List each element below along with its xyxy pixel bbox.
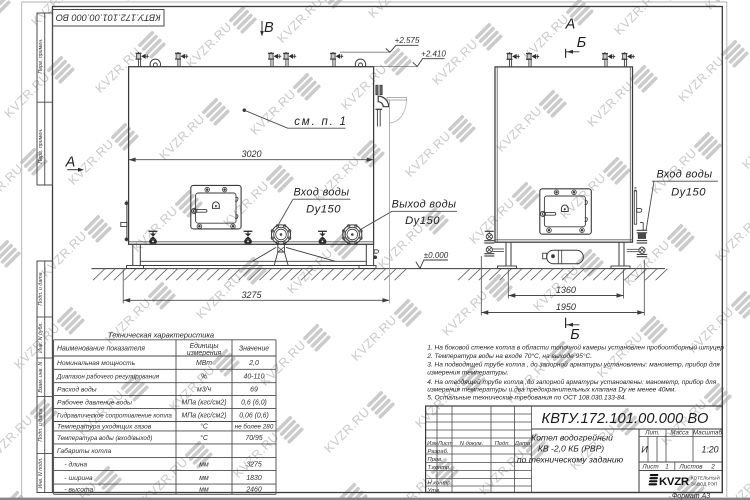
svg-text:Рабочее давление воды: Рабочее давление воды xyxy=(57,399,132,407)
svg-text:Котел водогрейный: Котел водогрейный xyxy=(531,433,613,443)
svg-text:Н.контр.: Н.контр. xyxy=(428,481,453,487)
svg-text:%: % xyxy=(201,373,207,380)
svg-text:1950: 1950 xyxy=(556,302,576,312)
svg-text:- ширина: - ширина xyxy=(57,475,93,482)
svg-text:Значение: Значение xyxy=(239,346,269,353)
svg-text:И: И xyxy=(641,445,648,455)
svg-text:Дата: Дата xyxy=(514,441,531,447)
svg-text:Вход воды: Вход воды xyxy=(656,169,712,181)
svg-text:по техническому заданию: по техническому заданию xyxy=(517,455,624,465)
svg-text:измерения: измерения xyxy=(187,350,222,357)
svg-text:мм: мм xyxy=(199,475,209,482)
svg-text:Температура воды (вход/выход): Температура воды (вход/выход) xyxy=(57,435,152,442)
svg-text:м3/ч: м3/ч xyxy=(197,387,211,394)
svg-text:3275: 3275 xyxy=(246,461,261,468)
svg-text:1830: 1830 xyxy=(246,475,261,482)
svg-text:°С: °С xyxy=(200,423,209,431)
svg-text:Гидравлическое сопротивление к: Гидравлическое сопротивление котла xyxy=(57,412,172,419)
svg-text:Б: Б xyxy=(570,327,579,343)
svg-text:В: В xyxy=(264,20,274,36)
svg-text:Лит.: Лит. xyxy=(644,430,660,437)
svg-text:Габариты котла: Габариты котла xyxy=(57,447,111,455)
svg-text:Перв. примен.: Перв. примен. xyxy=(38,38,44,73)
svg-text:Номинальная мощность: Номинальная мощность xyxy=(57,360,136,367)
svg-text:Dy150: Dy150 xyxy=(671,187,706,199)
svg-text:ЗАВОД РЭП: ЗАВОД РЭП xyxy=(691,482,717,487)
svg-text:МПа (кгс/см2): МПа (кгс/см2) xyxy=(181,412,226,419)
svg-text:КВТУ.172.101.00.000 ВО: КВТУ.172.101.00.000 ВО xyxy=(56,13,161,23)
svg-text:Выход воды: Выход воды xyxy=(392,199,457,211)
svg-text:Б: Б xyxy=(577,35,586,51)
svg-text:4. На отводящей трубе котла ,: 4. На отводящей трубе котла ,до запорной… xyxy=(427,378,717,386)
svg-text:мм: мм xyxy=(199,487,209,494)
svg-text:Изм: Изм xyxy=(427,441,438,447)
svg-text:- высота: - высота xyxy=(57,487,93,494)
svg-text:1. На боковой стенке котла в: 1. На боковой стенке котла в области топ… xyxy=(427,343,724,351)
svg-text:Перв. примен.: Перв. примен. xyxy=(38,128,44,163)
svg-text:2460: 2460 xyxy=(245,487,261,494)
svg-text:40-110: 40-110 xyxy=(244,373,265,380)
svg-text:Масса: Масса xyxy=(670,430,689,437)
svg-text:Температура уходящих газов: Температура уходящих газов xyxy=(57,423,152,431)
svg-text:Подп. и дата: Подп. и дата xyxy=(38,272,44,305)
svg-text:мм: мм xyxy=(199,461,209,468)
svg-text:Лист: Лист xyxy=(641,464,659,471)
svg-text:Наименование показателя: Наименование показателя xyxy=(57,346,145,353)
svg-text:КВ -2,0 КБ (РВР): КВ -2,0 КБ (РВР) xyxy=(538,444,604,454)
svg-text:измерения температуры и два пр: измерения температуры и два предохраните… xyxy=(427,386,676,394)
svg-text:70/95: 70/95 xyxy=(245,435,262,442)
svg-text:0,06 (0,6): 0,06 (0,6) xyxy=(239,412,269,419)
svg-text:Расход воды: Расход воды xyxy=(57,386,97,394)
svg-text:1: 1 xyxy=(665,464,669,471)
svg-text:КВТУ.172.101.00.000 ВО: КВТУ.172.101.00.000 ВО xyxy=(542,411,709,427)
svg-text:Взам. инв. N: Взам. инв. N xyxy=(38,362,44,393)
svg-text:2. Температура воды на входе: 2. Температура воды на входе 70°С, на вы… xyxy=(426,352,592,360)
svg-text:не более 280: не более 280 xyxy=(235,423,274,431)
svg-text:±0.000: ±0.000 xyxy=(424,251,449,260)
svg-text:измерения температуры.: измерения температуры. xyxy=(427,369,509,376)
svg-text:1360: 1360 xyxy=(556,285,576,295)
svg-text:+2.575: +2.575 xyxy=(395,36,420,45)
svg-text:0,6 (6,0): 0,6 (6,0) xyxy=(241,400,267,407)
svg-text:Техническая характеристика: Техническая характеристика xyxy=(108,331,214,340)
svg-text:Dy150: Dy150 xyxy=(306,204,341,216)
svg-text:2,0: 2,0 xyxy=(248,360,259,367)
svg-text:1:20: 1:20 xyxy=(701,444,718,454)
svg-text:Единицы: Единицы xyxy=(190,342,219,350)
svg-text:А: А xyxy=(565,17,576,33)
svg-text:КОТЕЛЬНЫЙ: КОТЕЛЬНЫЙ xyxy=(691,474,720,481)
svg-text:N докум.: N докум. xyxy=(460,441,483,447)
svg-text:Т.контр.: Т.контр. xyxy=(428,465,451,471)
svg-text:3275: 3275 xyxy=(241,290,262,300)
svg-text:- длина: - длина xyxy=(57,460,87,468)
svg-text:°С: °С xyxy=(200,434,209,442)
svg-text:Dy150: Dy150 xyxy=(405,215,440,227)
svg-text:Подп.: Подп. xyxy=(495,441,510,447)
svg-text:Инв. N подл.: Инв. N подл. xyxy=(38,458,44,489)
svg-text:Масштаб: Масштаб xyxy=(693,430,722,437)
svg-text:Вход воды: Вход воды xyxy=(293,187,349,199)
svg-text:+2.410: +2.410 xyxy=(421,49,446,58)
svg-text:2: 2 xyxy=(710,464,715,471)
svg-text:см. п. 1: см. п. 1 xyxy=(294,116,348,128)
svg-text:KVZR: KVZR xyxy=(659,476,689,488)
svg-text:Утв.: Утв. xyxy=(427,488,441,494)
svg-text:5. Остальные технические треб: 5. Остальные технические требования по О… xyxy=(427,394,626,402)
svg-text:Лист: Лист xyxy=(437,441,453,447)
svg-text:69: 69 xyxy=(250,387,258,394)
svg-text:Листов: Листов xyxy=(678,464,703,471)
svg-text:Пров.: Пров. xyxy=(428,457,443,463)
svg-text:Разраб.: Разраб. xyxy=(428,449,449,455)
svg-text:МВт: МВт xyxy=(196,360,212,367)
svg-text:Формат А3: Формат А3 xyxy=(672,493,710,500)
svg-text:Подп. и дата: Подп. и дата xyxy=(38,408,44,441)
svg-text:Инв. N дубл.: Инв. N дубл. xyxy=(38,322,44,353)
svg-text:3020: 3020 xyxy=(241,149,261,159)
svg-text:МПа (кгс/см2): МПа (кгс/см2) xyxy=(181,400,226,407)
svg-text:Диапазон рабочего регулировани: Диапазон рабочего регулирования xyxy=(56,373,160,380)
svg-text:3. На подводящей трубе котла: 3. На подводящей трубе котла , до запорн… xyxy=(427,361,720,369)
svg-text:А: А xyxy=(65,155,76,171)
